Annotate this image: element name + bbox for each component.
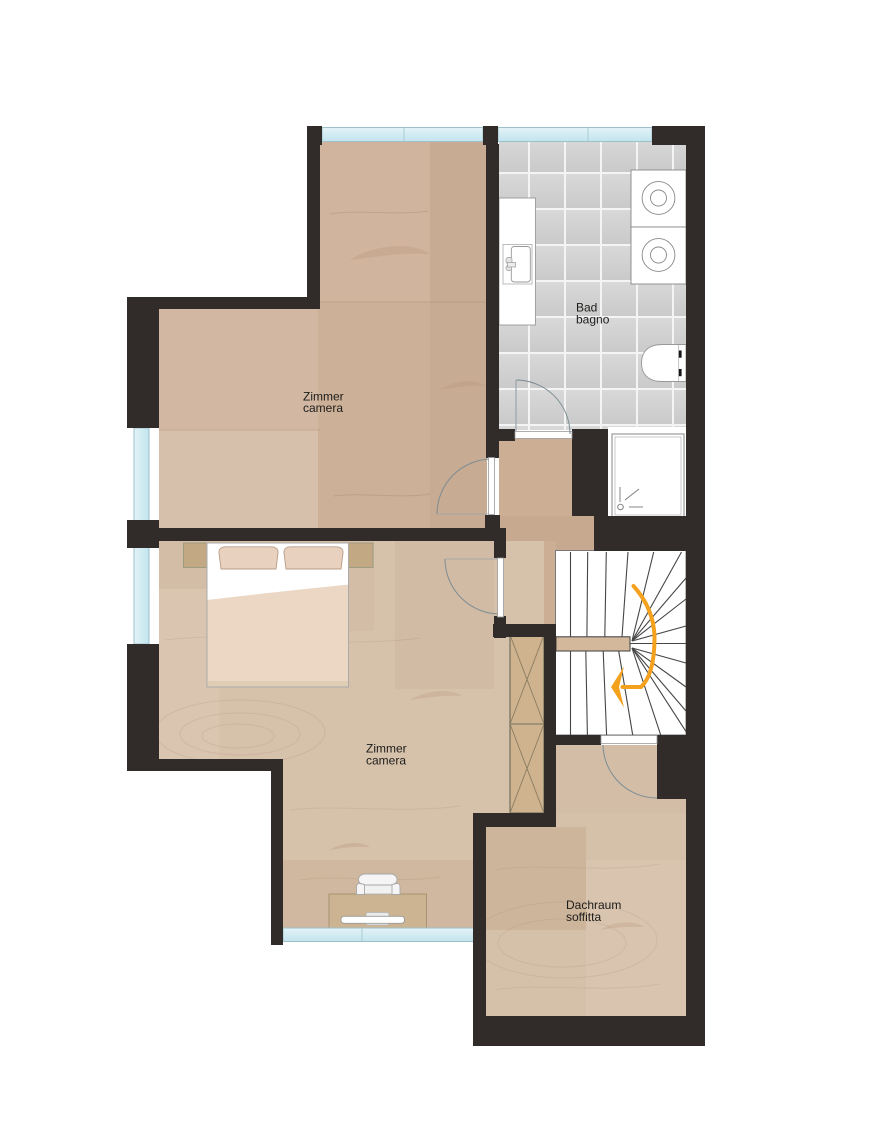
svg-text:camera: camera [303, 401, 343, 415]
svg-text:bagno: bagno [576, 312, 610, 326]
svg-text:camera: camera [366, 753, 406, 767]
svg-text:soffitta: soffitta [566, 910, 601, 924]
